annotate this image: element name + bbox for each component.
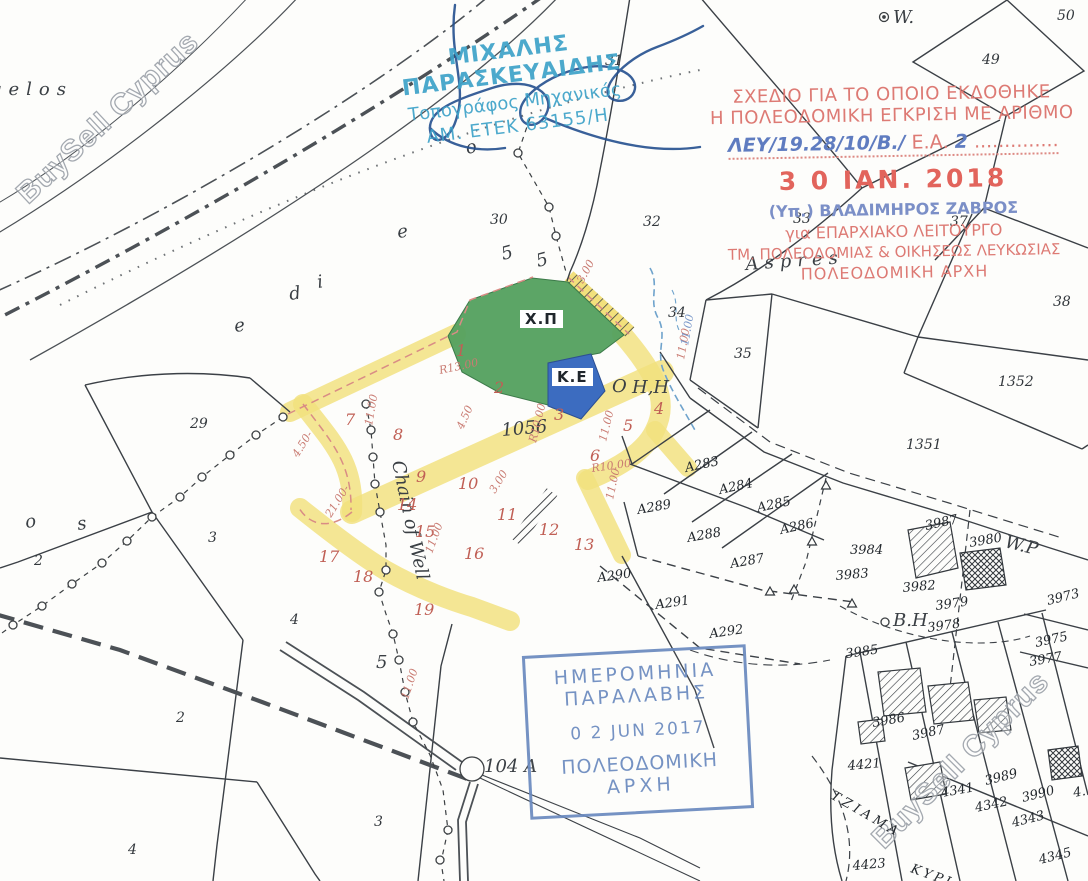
map-label: 18 <box>353 567 373 586</box>
map-label: 5 <box>499 242 515 265</box>
cadastral-plan-page: BuySell Cyprus BuySell Cyprus gelososedi… <box>0 0 1088 881</box>
map-label: e <box>396 221 409 243</box>
map-label: 38 <box>1053 294 1071 310</box>
map-label: 4421 <box>846 756 881 774</box>
map-label: A284 <box>717 476 755 498</box>
receipt-date-stamp: ΗΜΕΡΟΜΗΝΙΑ ΠΑΡΑΛΑΒΗΣ 0 2 JUN 2017 ΠΟΛΕΟΔ… <box>522 644 754 819</box>
map-label: 3.00 <box>574 258 597 286</box>
map-label: 3987 <box>911 722 947 744</box>
map-label: 3 <box>208 530 217 546</box>
map-label: A288 <box>685 525 722 546</box>
map-label: 16 <box>464 544 484 563</box>
map-label: 3989 <box>983 766 1019 789</box>
map-label: A289 <box>635 497 672 518</box>
map-label: 5 <box>534 249 550 272</box>
map-label: 4.50- <box>289 429 316 461</box>
map-label: 5 <box>376 652 387 673</box>
map-label: 14 <box>397 495 417 514</box>
map-label: 3990 <box>1020 783 1056 806</box>
map-label: 3.00 <box>487 468 511 496</box>
map-label: ΚΥΡΙ <box>908 861 956 881</box>
svg-text:BuySell Cyprus: BuySell Cyprus <box>10 25 205 210</box>
map-label: 11.00 <box>362 393 380 426</box>
map-label: gelos <box>0 79 73 100</box>
map-label: 3982 <box>902 578 936 596</box>
map-label: 4 <box>653 399 664 418</box>
map-label: 3979 <box>934 595 969 614</box>
map-label: 3986 <box>871 710 906 731</box>
map-label: 3987 <box>924 512 960 534</box>
map-label: 4423 <box>851 856 886 874</box>
map-label: i <box>316 271 325 293</box>
map-label: 35 <box>734 346 752 362</box>
approval-signed-by: (Υπ.) ΒΛΑΔΙΜΗΡΟΣ ΖΑΒΡΟΣ <box>693 197 1088 223</box>
map-label: o <box>24 511 38 533</box>
map-label: A292 <box>707 622 744 642</box>
map-label: 10 <box>458 474 478 493</box>
map-label: 1351 <box>906 437 942 453</box>
approval-reference-handwritten: ΛΕΥ/19.28/10/Β./ <box>728 132 906 157</box>
map-label: 7 <box>345 410 356 429</box>
map-label: 2 <box>33 553 43 569</box>
map-label: 32 <box>643 214 661 230</box>
map-label: 3985 <box>844 643 879 662</box>
watermark-top-left: BuySell Cyprus <box>10 25 205 210</box>
roads <box>0 614 478 881</box>
map-label: 3973 <box>1045 586 1081 609</box>
map-label: 3984 <box>850 543 883 558</box>
map-label: 3983 <box>835 566 869 584</box>
map-label: 4.50 <box>453 404 475 433</box>
green-zone-label: Χ.Π <box>520 310 563 328</box>
blue-zone-label: Κ.Ε <box>552 368 593 386</box>
map-label: A286 <box>778 516 816 538</box>
map-label: d <box>288 283 302 305</box>
map-label: 19 <box>414 600 434 619</box>
approval-reference: ΛΕΥ/19.28/10/Β./ Ε.Α. 2 .............. <box>728 129 1059 160</box>
map-label: O <box>612 376 627 397</box>
map-label: 50 <box>1057 8 1075 24</box>
map-label: 29 <box>189 416 208 432</box>
map-label: 9 <box>416 467 426 486</box>
approval-reference-dots: .............. <box>974 129 1059 152</box>
map-label: 8 <box>393 425 403 444</box>
map-label: A287 <box>728 551 766 572</box>
map-label: 30 <box>490 212 508 228</box>
map-label: 12 <box>539 520 559 539</box>
map-label: 4342 <box>973 794 1009 816</box>
map-label: W.P <box>1003 531 1041 560</box>
map-label: A291 <box>653 593 690 613</box>
map-label: 5 <box>623 416 633 435</box>
map-label: e <box>233 315 246 337</box>
map-label: 4343 <box>1009 808 1046 831</box>
map-label: A285 <box>755 494 793 516</box>
map-label: 1352 <box>998 374 1034 390</box>
map-label: s <box>76 513 88 535</box>
map-label: 4345 <box>1036 845 1073 868</box>
map-label: 2 <box>175 710 185 726</box>
map-label: 1 <box>456 341 466 360</box>
map-label: H,H <box>631 377 669 398</box>
map-label: 3 <box>374 814 383 830</box>
map-label: 49 <box>981 52 1000 68</box>
map-label: 3977 <box>1028 649 1064 670</box>
map-label: 3 <box>554 405 564 424</box>
approval-date-stamp: 3 0 ΙΑΝ. 2018 <box>693 162 1088 198</box>
planning-approval-stamp: ΣΧΕΔΙΟ ΓΙΑ ΤΟ ΟΠΟΙΟ ΕΚΔΟΘΗΚΕ Η ΠΟΛΕΟΔΟΜΙ… <box>691 81 1088 286</box>
map-label: B.H <box>892 610 928 631</box>
map-label: W. <box>893 7 914 28</box>
receipt-date: 0 2 JUN 2017 <box>529 715 748 746</box>
approval-reference-label: Ε.Α. <box>911 131 948 154</box>
map-label: 11.00 <box>596 409 616 443</box>
approval-reference-number: 2 <box>954 131 968 153</box>
map-label: 3975 <box>1034 629 1069 651</box>
map-label: 11 <box>497 505 517 524</box>
map-label: 4 <box>289 612 299 628</box>
map-label: 17 <box>319 547 340 566</box>
map-label: 2 <box>493 378 504 397</box>
map-label: 4 <box>127 842 137 858</box>
map-label: 4. <box>1071 784 1087 801</box>
map-label: 13 <box>574 535 594 554</box>
map-label: A290 <box>595 566 632 586</box>
